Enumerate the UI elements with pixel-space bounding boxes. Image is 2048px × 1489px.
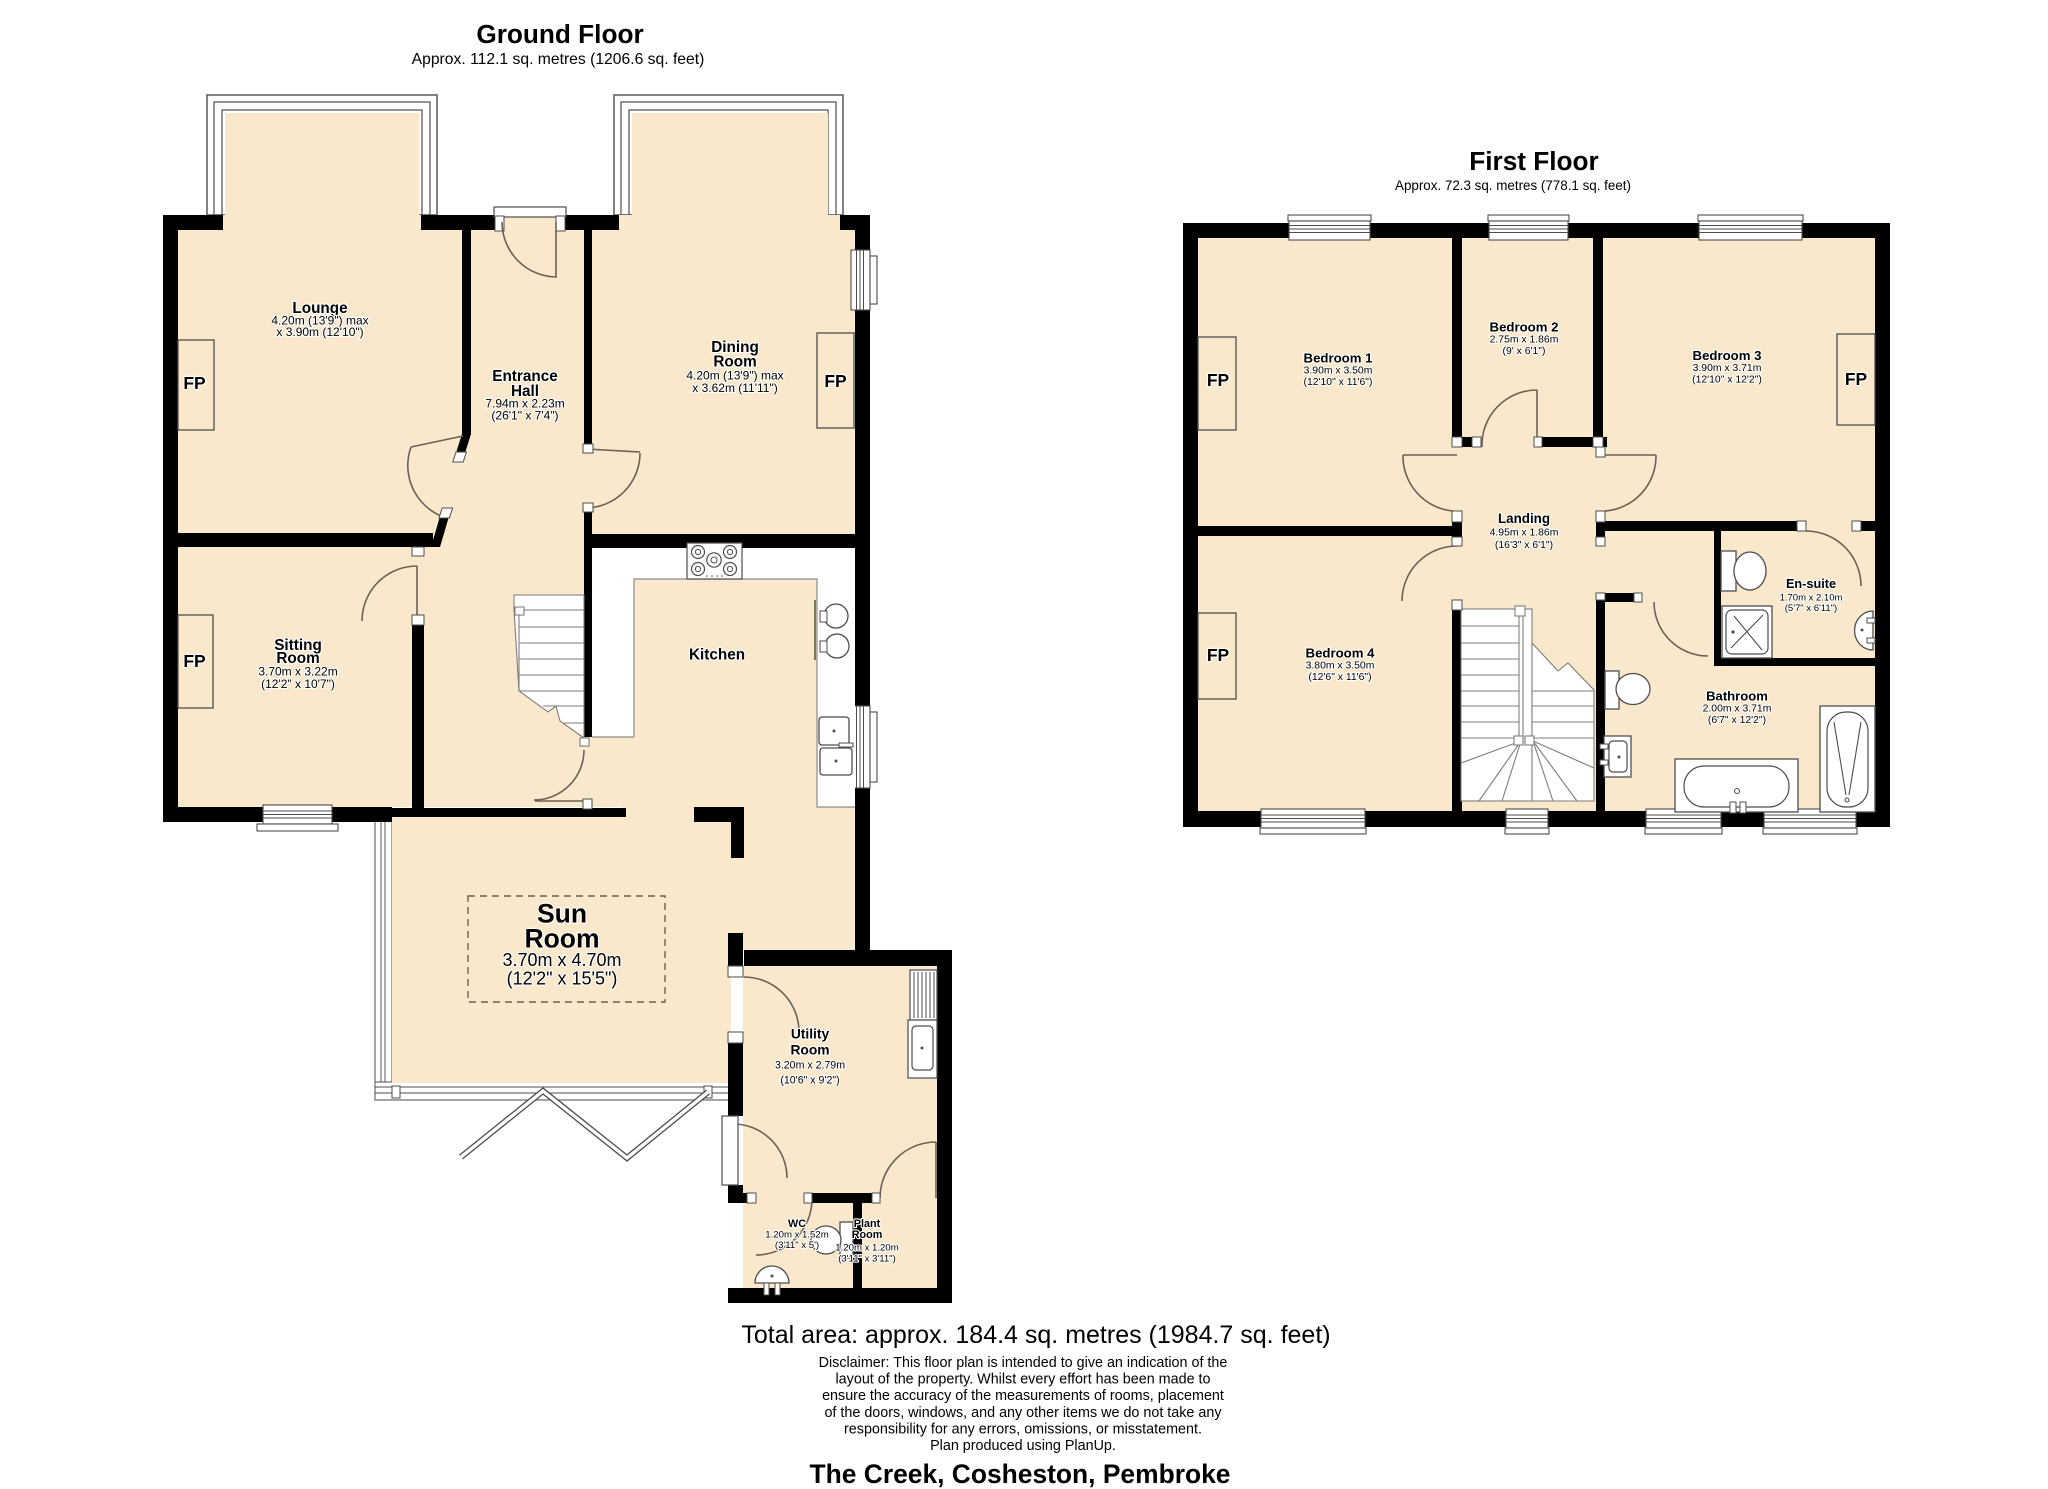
svg-text:responsibility for any errors,: responsibility for any errors, omissions… — [844, 1421, 1202, 1437]
svg-text:(12'10" x 11'6"): (12'10" x 11'6") — [1304, 377, 1373, 388]
svg-text:Ground Floor: Ground Floor — [476, 19, 643, 49]
svg-text:First Floor: First Floor — [1469, 146, 1598, 176]
svg-text:Bedroom 4: Bedroom 4 — [1306, 646, 1376, 661]
svg-text:2.75m x 1.86m: 2.75m x 1.86m — [1490, 335, 1559, 346]
svg-text:(9' x 6'1"): (9' x 6'1") — [1503, 346, 1546, 357]
svg-text:(12'2" x 15'5"): (12'2" x 15'5") — [507, 969, 618, 989]
svg-text:Bedroom 1: Bedroom 1 — [1304, 351, 1373, 366]
svg-text:FP: FP — [183, 373, 206, 393]
svg-text:(6'7" x 12'2"): (6'7" x 12'2") — [1708, 715, 1766, 726]
svg-text:x 3.90m (12'10"): x 3.90m (12'10") — [276, 325, 363, 339]
svg-text:Total area: approx. 184.4 sq.: Total area: approx. 184.4 sq. metres (19… — [741, 1321, 1330, 1349]
svg-text:x 3.62m (11'11"): x 3.62m (11'11") — [692, 381, 777, 395]
svg-text:FP: FP — [1207, 370, 1230, 390]
svg-text:(10'6" x 9'2"): (10'6" x 9'2") — [780, 1075, 839, 1087]
svg-text:of the doors, windows, and any: of the doors, windows, and any other ite… — [824, 1405, 1222, 1421]
svg-text:(16'3" x 6'1"): (16'3" x 6'1") — [1495, 540, 1553, 551]
svg-text:1.20m x 1.20m: 1.20m x 1.20m — [835, 1243, 898, 1254]
svg-text:3.80m x 3.50m: 3.80m x 3.50m — [1306, 661, 1375, 672]
svg-text:(12'10" x 12'2"): (12'10" x 12'2") — [1692, 375, 1762, 386]
svg-text:3.90m x 3.50m: 3.90m x 3.50m — [1304, 366, 1373, 377]
svg-text:WC: WC — [788, 1218, 806, 1230]
svg-text:ensure the accuracy of the mea: ensure the accuracy of the measurements … — [822, 1388, 1224, 1404]
svg-text:FP: FP — [1845, 369, 1868, 389]
svg-text:Room: Room — [524, 924, 599, 954]
svg-text:(5'7" x 6'11"): (5'7" x 6'11") — [1785, 603, 1837, 614]
svg-text:Approx. 112.1 sq. metres (1206: Approx. 112.1 sq. metres (1206.6 sq. fee… — [412, 51, 705, 68]
svg-text:Bathroom: Bathroom — [1706, 689, 1768, 704]
svg-text:3.90m x 3.71m: 3.90m x 3.71m — [1693, 363, 1762, 374]
svg-text:(3'11" x 5'): (3'11" x 5') — [775, 1240, 819, 1251]
svg-text:Approx. 72.3 sq. metres (778.1: Approx. 72.3 sq. metres (778.1 sq. feet) — [1395, 178, 1631, 193]
svg-text:Kitchen: Kitchen — [689, 647, 745, 664]
svg-text:4.95m x 1.86m: 4.95m x 1.86m — [1490, 528, 1559, 539]
svg-text:(26'1" x 7'4"): (26'1" x 7'4") — [491, 409, 558, 423]
svg-text:(12'2" x 10'7"): (12'2" x 10'7") — [261, 677, 335, 691]
svg-text:The Creek, Cosheston, Pembroke: The Creek, Cosheston, Pembroke — [810, 1459, 1231, 1489]
svg-text:(3'11" x 3'11"): (3'11" x 3'11") — [838, 1254, 896, 1265]
svg-text:Bedroom 3: Bedroom 3 — [1693, 348, 1762, 363]
svg-text:1.70m x 2.10m: 1.70m x 2.10m — [1780, 593, 1843, 604]
svg-text:Plan produced using PlanUp.: Plan produced using PlanUp. — [930, 1438, 1116, 1454]
svg-text:Bedroom 2: Bedroom 2 — [1490, 320, 1559, 335]
svg-text:Utility: Utility — [791, 1027, 830, 1042]
svg-text:Room: Room — [790, 1043, 829, 1058]
svg-text:3.70m x 4.70m: 3.70m x 4.70m — [502, 950, 621, 970]
svg-text:FP: FP — [183, 651, 206, 671]
svg-text:Disclaimer: This floor plan is: Disclaimer: This floor plan is intended … — [819, 1355, 1228, 1371]
svg-text:(12'6" x 11'6"): (12'6" x 11'6") — [1308, 672, 1371, 683]
svg-text:En-suite: En-suite — [1786, 577, 1836, 591]
svg-text:FP: FP — [824, 371, 847, 391]
svg-text:2.00m x 3.71m: 2.00m x 3.71m — [1703, 704, 1772, 715]
svg-text:3.20m x 2.79m: 3.20m x 2.79m — [775, 1060, 845, 1072]
svg-text:Room: Room — [852, 1229, 883, 1241]
svg-text:1.20m x 1.52m: 1.20m x 1.52m — [765, 1230, 828, 1241]
svg-text:Landing: Landing — [1498, 511, 1550, 526]
svg-text:FP: FP — [1207, 645, 1230, 665]
svg-text:layout of the property. Whilst: layout of the property. Whilst every eff… — [836, 1372, 1211, 1388]
